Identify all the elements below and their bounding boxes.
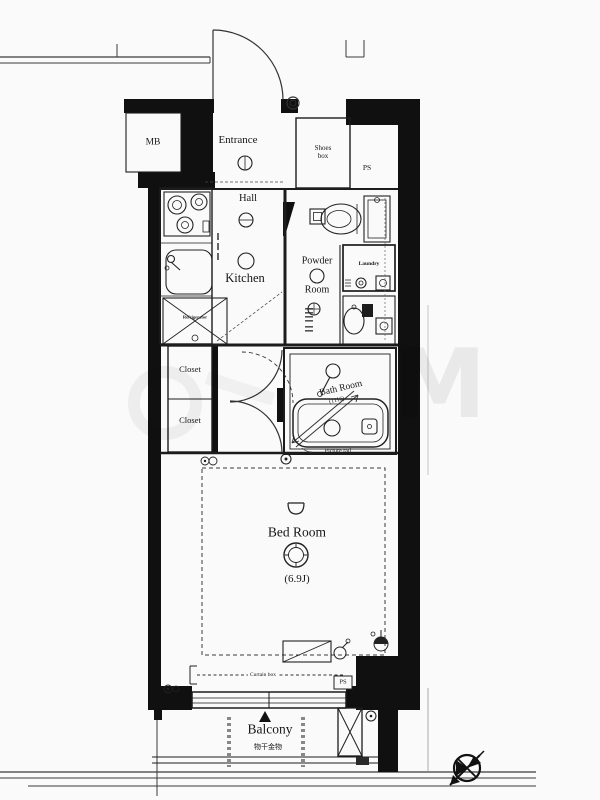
downlight-icon [238, 253, 254, 269]
label-balcony: Balcony [248, 721, 293, 736]
label-bed-room-size: (6.9J) [284, 573, 309, 585]
label-powder-room-1: Powder [302, 255, 333, 266]
label-picture-rail: Picture rail [325, 449, 352, 456]
window-marker [259, 711, 271, 722]
bedroom-symbols [164, 457, 388, 693]
washer-valve-icon [356, 278, 366, 288]
label-ps-top: PS [363, 164, 371, 172]
label-hall: Hall [239, 193, 257, 205]
ceiling-light-icon [288, 503, 304, 514]
label-shoes-box: Shoes box [315, 145, 332, 161]
label-refrigerator: Refrigerator [183, 314, 207, 319]
label-curtain-box: Curtain box [248, 672, 278, 678]
label-balcony-note: 物干金物 [254, 744, 282, 752]
shower-icon [326, 364, 340, 378]
label-powder-room-2: Room [305, 284, 329, 295]
tiny-vertical-text [217, 233, 219, 260]
watermark-text: M [392, 330, 487, 440]
floorplan-linework [0, 0, 600, 800]
floor-plan-canvas: M MB Entrance Shoes box PS Hall Kitchen … [0, 0, 600, 800]
shoes-box-line2: box [315, 153, 332, 161]
label-kitchen: Kitchen [225, 271, 265, 285]
north-arrow-icon [450, 751, 484, 785]
control-panel-icon [310, 209, 325, 224]
sanitary-fixtures [305, 196, 392, 340]
label-entrance: Entrance [218, 134, 257, 146]
label-mb: MB [146, 138, 161, 149]
watermark-shape [128, 366, 202, 440]
label-ps-bottom: PS [339, 678, 346, 685]
picture-rail-outline [202, 468, 385, 655]
label-bed-room: Bed Room [268, 524, 326, 539]
label-laundry: Laundry [359, 261, 380, 267]
label-closet-upper: Closet [179, 365, 201, 375]
bathtub-icon [293, 399, 388, 447]
downlight-icon [310, 269, 324, 283]
label-closet-lower: Closet [179, 416, 201, 426]
washbasin-icon [344, 308, 364, 334]
